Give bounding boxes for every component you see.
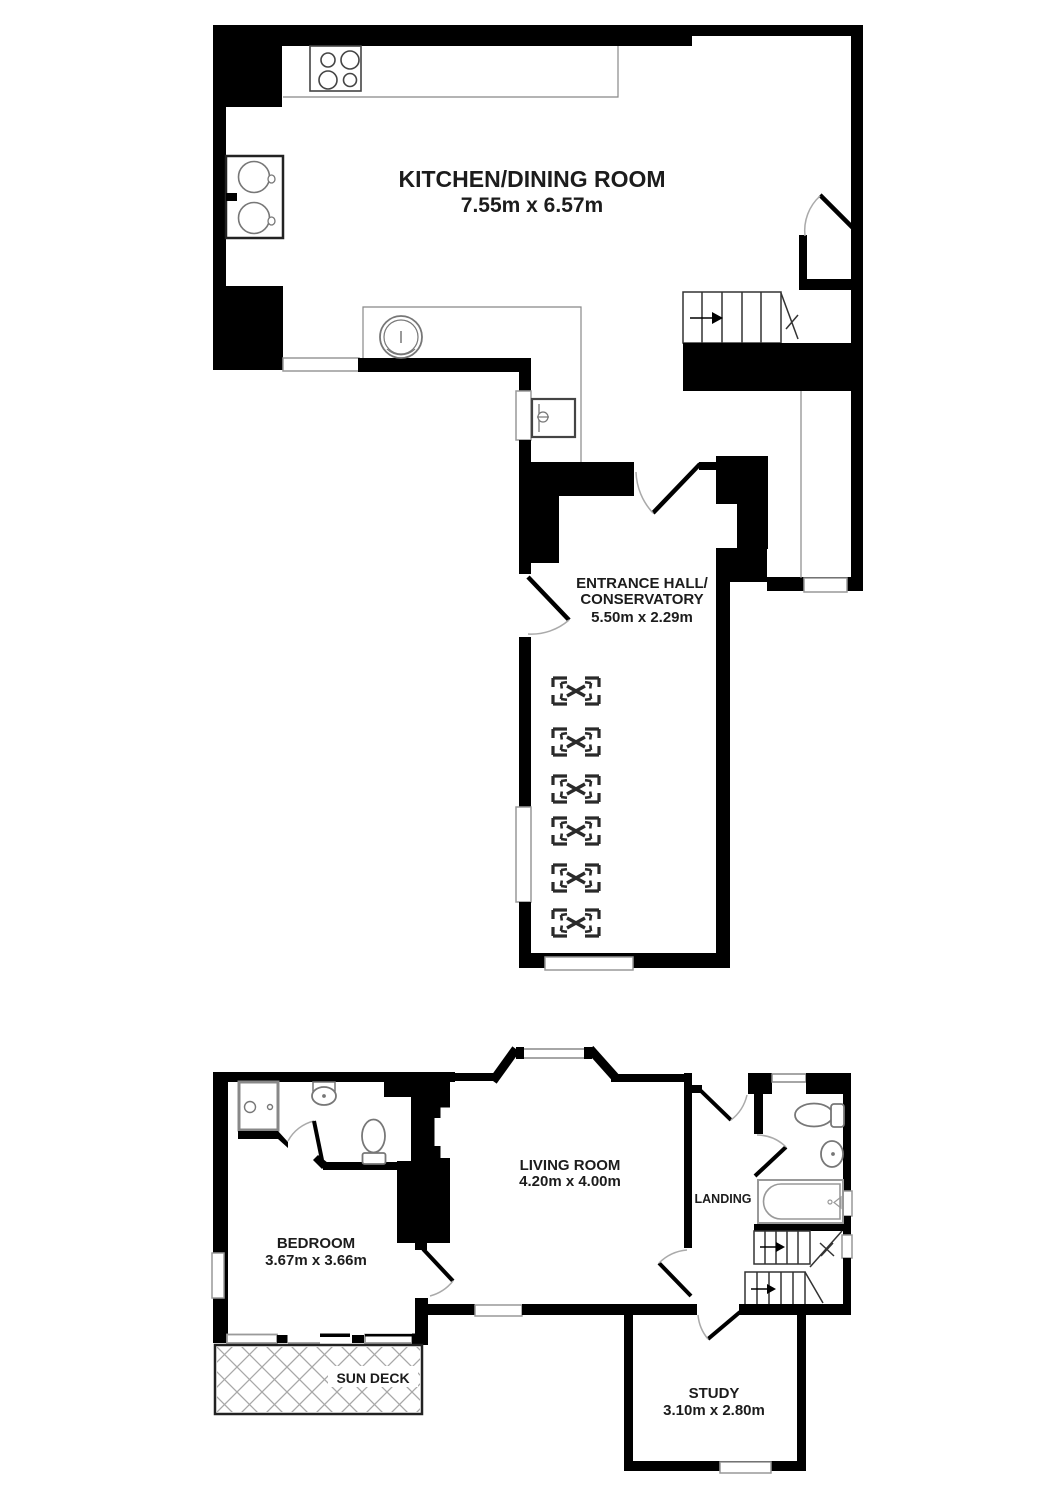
svg-text:7.55m x 6.57m: 7.55m x 6.57m [461,194,603,217]
svg-text:LIVING ROOM: LIVING ROOM [520,1157,621,1174]
svg-text:5.50m x 2.29m: 5.50m x 2.29m [591,609,693,626]
svg-text:BEDROOM: BEDROOM [277,1235,355,1252]
svg-text:CONSERVATORY: CONSERVATORY [580,591,703,608]
svg-text:SUN DECK: SUN DECK [336,1370,409,1386]
svg-text:3.67m x 3.66m: 3.67m x 3.66m [265,1252,367,1269]
svg-text:LANDING: LANDING [695,1192,752,1206]
svg-text:ENTRANCE HALL/: ENTRANCE HALL/ [576,575,708,592]
svg-text:STUDY: STUDY [689,1385,740,1402]
svg-text:4.20m x 4.00m: 4.20m x 4.00m [519,1173,621,1190]
svg-text:3.10m x 2.80m: 3.10m x 2.80m [663,1402,765,1419]
svg-text:KITCHEN/DINING ROOM: KITCHEN/DINING ROOM [398,166,665,192]
